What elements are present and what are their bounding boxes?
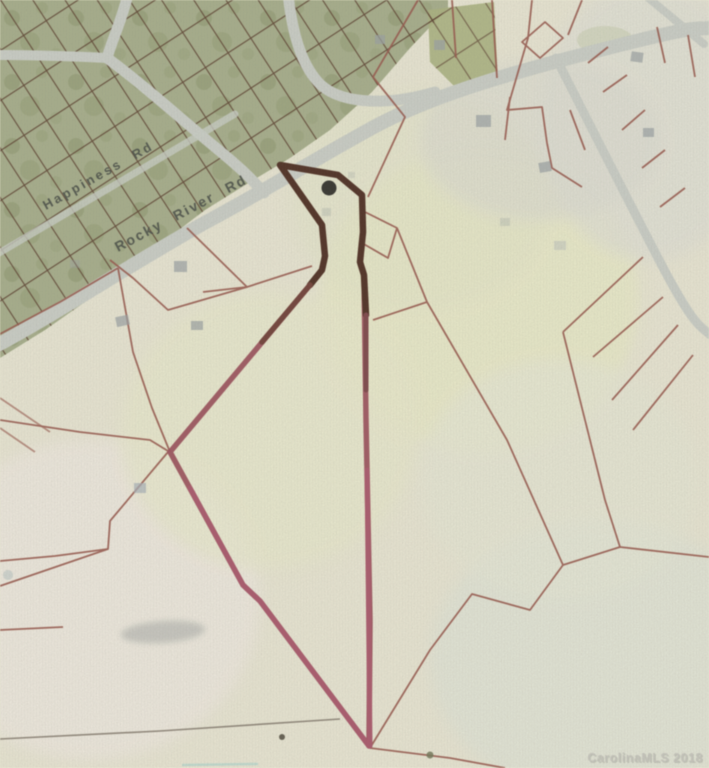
haze-overlay <box>0 0 709 768</box>
parcel-map-svg: Happiness Rd Rocky River Rd CarolinaMLS … <box>0 0 709 768</box>
mls-parcel-map-photo: Happiness Rd Rocky River Rd CarolinaMLS … <box>0 0 709 768</box>
